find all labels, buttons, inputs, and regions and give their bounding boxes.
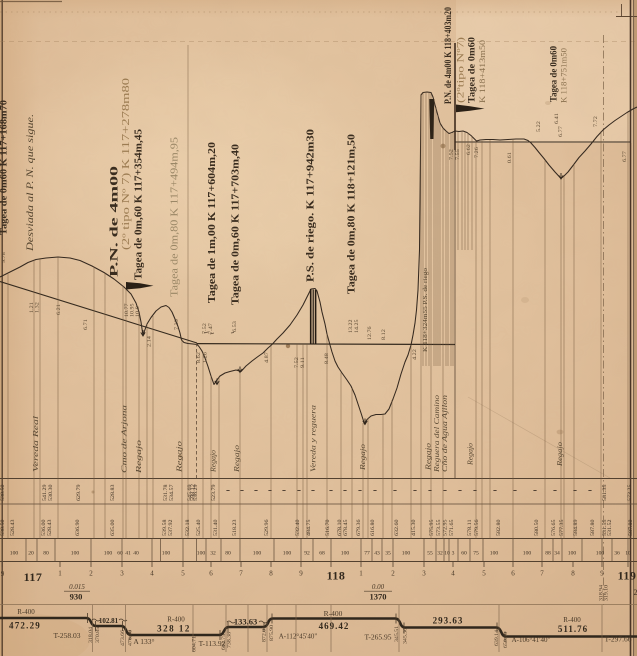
svg-text:582.80: 582.80 xyxy=(496,519,502,536)
svg-text:119: 119 xyxy=(618,569,637,583)
svg-text:60: 60 xyxy=(461,551,467,557)
svg-text:77: 77 xyxy=(364,551,370,557)
svg-text:R-400: R-400 xyxy=(17,608,35,616)
svg-text:523.79: 523.79 xyxy=(211,484,217,501)
svg-text:100: 100 xyxy=(341,551,350,557)
svg-text:41: 41 xyxy=(125,551,131,557)
svg-text:529.96: 529.96 xyxy=(264,519,270,536)
svg-text:530.30: 530.30 xyxy=(48,484,54,501)
svg-text:345.51: 345.51 xyxy=(394,626,400,642)
svg-text:Tagea de 0m60 K 117+168m70: Tagea de 0m60 K 117+168m70 xyxy=(0,100,10,235)
svg-text:100: 100 xyxy=(490,551,499,557)
svg-text:100: 100 xyxy=(104,551,113,557)
svg-text:1.32: 1.32 xyxy=(35,302,41,313)
svg-text:530.50: 530.50 xyxy=(0,484,6,501)
svg-text:80: 80 xyxy=(225,551,231,557)
svg-text:Tagea de 0m,60 K 117+703m,40: Tagea de 0m,60 K 117+703m,40 xyxy=(231,144,242,305)
svg-text:572.95: 572.95 xyxy=(443,519,449,536)
svg-text:R-400: R-400 xyxy=(324,609,343,618)
svg-text:P.S. de riego. K 117+942m30: P.S. de riego. K 117+942m30 xyxy=(306,129,317,282)
svg-text:P.N. de 4m00: P.N. de 4m00 xyxy=(109,166,121,277)
svg-text:20: 20 xyxy=(28,551,34,557)
svg-text:636.90: 636.90 xyxy=(75,519,81,536)
svg-text:Vereda y reguera: Vereda y reguera xyxy=(310,404,318,472)
svg-text:117: 117 xyxy=(24,570,43,584)
svg-text:55: 55 xyxy=(427,551,433,557)
svg-text:K 118+751m50: K 118+751m50 xyxy=(560,48,569,103)
svg-text:Tagea de 0m60: Tagea de 0m60 xyxy=(549,46,559,102)
svg-text:Tagea de 0m,80 K 117+494m,95: Tagea de 0m,80 K 117+494m,95 xyxy=(170,137,181,297)
svg-text:6: 6 xyxy=(209,570,213,578)
svg-text:4: 4 xyxy=(451,570,455,578)
svg-text:32: 32 xyxy=(437,551,443,557)
svg-text:531.40: 531.40 xyxy=(213,519,219,536)
svg-text:3: 3 xyxy=(452,551,455,557)
svg-text:532.18: 532.18 xyxy=(185,519,191,536)
svg-text:P.N. de 4m00 K 118+403m20: P.N. de 4m00 K 118+403m20 xyxy=(443,7,453,104)
svg-text:100: 100 xyxy=(596,551,605,557)
svg-text:133.63: 133.63 xyxy=(234,617,257,627)
svg-text:88: 88 xyxy=(545,551,551,557)
svg-text:598.12: 598.12 xyxy=(191,484,197,501)
svg-text:9.78: 9.78 xyxy=(1,252,7,263)
svg-text:7.52: 7.52 xyxy=(449,149,455,160)
svg-text:R-400: R-400 xyxy=(563,616,581,624)
svg-text:635.00: 635.00 xyxy=(110,519,116,536)
svg-text:9: 9 xyxy=(600,570,604,578)
svg-text:370.85: 370.85 xyxy=(95,627,101,643)
svg-text:100: 100 xyxy=(402,551,411,557)
svg-text:616.80: 616.80 xyxy=(370,519,376,536)
svg-text:2.14: 2.14 xyxy=(147,336,153,347)
svg-text:T-297.66: T-297.66 xyxy=(604,635,631,644)
svg-text:Tagea de 0m60: Tagea de 0m60 xyxy=(468,37,478,103)
svg-text:1370: 1370 xyxy=(370,592,387,602)
svg-text:679.36: 679.36 xyxy=(356,519,362,536)
svg-text:875.90: 875.90 xyxy=(269,625,275,641)
svg-text:10: 10 xyxy=(625,551,631,557)
svg-text:92: 92 xyxy=(304,551,310,557)
svg-text:484.75: 484.75 xyxy=(306,519,312,536)
svg-text:Tagea de 1m,00 K 117+604m,20: Tagea de 1m,00 K 117+604m,20 xyxy=(207,142,218,303)
svg-text:7.26: 7.26 xyxy=(474,147,480,158)
svg-text:2: 2 xyxy=(391,570,395,578)
svg-text:(2º tipo Nº 7) K 117+278m80: (2º tipo Nº 7) K 117+278m80 xyxy=(121,78,132,250)
svg-text:14.25: 14.25 xyxy=(354,319,360,333)
svg-text:Regajo: Regajo xyxy=(425,442,433,471)
svg-text:469.42: 469.42 xyxy=(319,621,350,631)
svg-text:100: 100 xyxy=(162,551,171,557)
svg-text:75: 75 xyxy=(473,551,479,557)
svg-text:573.55: 573.55 xyxy=(436,519,442,536)
svg-text:7.39: 7.39 xyxy=(174,319,180,330)
svg-text:100: 100 xyxy=(197,551,206,557)
svg-text:100: 100 xyxy=(523,551,532,557)
svg-text:10: 10 xyxy=(444,551,450,557)
svg-text:Regajo: Regajo xyxy=(135,439,143,474)
svg-text:8: 8 xyxy=(571,570,575,578)
svg-text:10.9: 10.9 xyxy=(135,306,141,317)
svg-text:7.72: 7.72 xyxy=(593,116,599,127)
svg-text:Tagea de 0m,60 K 117+354m,45: Tagea de 0m,60 K 117+354m,45 xyxy=(134,129,145,280)
svg-text:(2ºtipo Nº7): (2ºtipo Nº7) xyxy=(456,37,467,103)
svg-text:100: 100 xyxy=(253,551,262,557)
svg-text:4.87: 4.87 xyxy=(264,352,270,363)
svg-text:Regajo: Regajo xyxy=(210,449,218,473)
svg-text:Regajo: Regajo xyxy=(176,440,184,473)
svg-text:Regajo: Regajo xyxy=(233,444,241,473)
svg-text:1: 1 xyxy=(359,570,363,578)
svg-text:584.89: 584.89 xyxy=(573,519,579,536)
svg-text:9: 9 xyxy=(1,570,5,578)
svg-text:577.35: 577.35 xyxy=(559,519,565,536)
svg-text:8.62: 8.62 xyxy=(196,352,202,363)
svg-text:587.80: 587.80 xyxy=(590,519,596,536)
svg-text:318.04: 318.04 xyxy=(88,627,94,643)
svg-text:Regajo: Regajo xyxy=(467,442,475,466)
svg-text:A-112°45'40": A-112°45'40" xyxy=(279,633,318,641)
svg-text:7.47: 7.47 xyxy=(208,323,214,334)
svg-text:639.14: 639.14 xyxy=(494,630,500,646)
svg-text:34: 34 xyxy=(554,551,560,557)
svg-text:604.71: 604.71 xyxy=(192,636,198,652)
svg-text:118: 118 xyxy=(327,569,346,583)
svg-text:328 12: 328 12 xyxy=(157,624,191,634)
svg-text:Desviada al P. N. que sigue.: Desviada al P. N. que sigue. xyxy=(25,114,36,252)
svg-text:12.76: 12.76 xyxy=(367,326,373,340)
svg-text:8.48: 8.48 xyxy=(324,353,330,364)
svg-text:5.22: 5.22 xyxy=(536,121,542,132)
svg-text:4: 4 xyxy=(150,570,154,578)
svg-text:293.63: 293.63 xyxy=(433,616,464,626)
svg-text:100: 100 xyxy=(10,551,19,557)
svg-text:102.81: 102.81 xyxy=(99,617,119,625)
svg-text:6.71: 6.71 xyxy=(83,319,89,330)
svg-text:K 118+413m50: K 118+413m50 xyxy=(477,40,487,103)
svg-text:7: 7 xyxy=(239,570,243,578)
svg-text:580.50: 580.50 xyxy=(534,519,540,536)
svg-text:1.26: 1.26 xyxy=(203,352,209,363)
svg-text:678.45: 678.45 xyxy=(343,519,349,536)
svg-text:581.35: 581.35 xyxy=(602,484,608,501)
svg-text:650.90: 650.90 xyxy=(503,632,509,648)
svg-text:528.43: 528.43 xyxy=(10,519,16,536)
svg-text:8: 8 xyxy=(269,570,273,578)
svg-text:Vereda Real: Vereda Real xyxy=(32,416,40,472)
svg-text:473.66: 473.66 xyxy=(120,630,126,646)
svg-text:0.015: 0.015 xyxy=(69,583,85,591)
svg-text:472.29: 472.29 xyxy=(9,621,41,631)
svg-text:5: 5 xyxy=(181,570,185,578)
svg-text:537.92: 537.92 xyxy=(168,519,174,536)
svg-text:3: 3 xyxy=(120,570,124,578)
svg-text:100: 100 xyxy=(71,551,80,557)
svg-text:345.50: 345.50 xyxy=(403,628,409,644)
svg-text:9.11: 9.11 xyxy=(300,357,306,368)
svg-text:6.21: 6.21 xyxy=(56,304,62,315)
svg-text:532.40: 532.40 xyxy=(295,519,301,536)
svg-text:Reguera del Camino: Reguera del Camino xyxy=(433,394,441,473)
svg-text:8.12: 8.12 xyxy=(381,329,387,340)
svg-text:A-106°41'40": A-106°41'40" xyxy=(512,636,551,644)
svg-text:573.25: 573.25 xyxy=(627,484,633,501)
svg-text:476.50: 476.50 xyxy=(128,630,134,646)
svg-text:40: 40 xyxy=(133,551,139,557)
svg-text:7.55: 7.55 xyxy=(455,149,461,160)
svg-text:530.50: 530.50 xyxy=(0,519,6,536)
svg-text:579.56: 579.56 xyxy=(474,519,480,536)
svg-text:2: 2 xyxy=(89,570,93,578)
svg-text:319.10: 319.10 xyxy=(604,585,610,601)
svg-text:525.40: 525.40 xyxy=(196,519,202,536)
svg-text:576.65: 576.65 xyxy=(551,519,557,536)
svg-text:68: 68 xyxy=(319,551,325,557)
svg-text:534.57: 534.57 xyxy=(169,484,175,501)
svg-text:930: 930 xyxy=(70,592,83,602)
svg-text:35: 35 xyxy=(385,551,391,557)
svg-text:Regajo: Regajo xyxy=(556,441,564,467)
svg-text:575.95: 575.95 xyxy=(429,519,435,536)
svg-text:6.41: 6.41 xyxy=(554,113,560,124)
svg-text:Regajo: Regajo xyxy=(359,443,367,471)
svg-text:K 118+324m55 P.S. de riego: K 118+324m55 P.S. de riego xyxy=(422,267,429,352)
svg-text:872.01: 872.01 xyxy=(262,626,268,642)
svg-text:0.00: 0.00 xyxy=(372,583,385,591)
svg-text:43: 43 xyxy=(374,551,380,557)
svg-text:6.77: 6.77 xyxy=(622,151,628,162)
svg-text:4.22: 4.22 xyxy=(412,349,418,360)
svg-text:511.76: 511.76 xyxy=(558,624,588,634)
svg-text:9: 9 xyxy=(299,570,303,578)
svg-text:632.60: 632.60 xyxy=(394,519,400,536)
svg-text:578.11: 578.11 xyxy=(467,519,473,536)
svg-text:32: 32 xyxy=(210,551,216,557)
svg-text:629.79: 629.79 xyxy=(76,484,82,501)
svg-text:6.53: 6.53 xyxy=(232,321,238,332)
svg-text:T-258.03: T-258.03 xyxy=(53,631,80,640)
svg-text:1: 1 xyxy=(58,570,62,578)
svg-text:528.83: 528.83 xyxy=(110,484,116,501)
svg-text:A 133°: A 133° xyxy=(133,637,154,646)
svg-text:518.23: 518.23 xyxy=(232,519,238,536)
svg-text:516.70: 516.70 xyxy=(325,519,331,536)
svg-text:3: 3 xyxy=(422,570,426,578)
svg-text:6: 6 xyxy=(511,570,515,578)
svg-text:Tagea de 0m,80 K 118+121m,50: Tagea de 0m,80 K 118+121m,50 xyxy=(347,134,358,294)
svg-text:528.43: 528.43 xyxy=(47,519,53,536)
svg-text:738.38: 738.38 xyxy=(227,632,233,648)
svg-text:531.52: 531.52 xyxy=(607,519,613,536)
svg-text:415.30: 415.30 xyxy=(411,519,417,536)
svg-text:587.80: 587.80 xyxy=(628,519,634,536)
svg-text:100: 100 xyxy=(568,551,577,557)
svg-text:571.65: 571.65 xyxy=(449,519,455,536)
svg-text:80: 80 xyxy=(43,551,49,557)
svg-text:T-265.95: T-265.95 xyxy=(364,633,391,642)
svg-text:60: 60 xyxy=(117,551,123,557)
svg-text:Cño de Agua Ajilon: Cño de Agua Ajilon xyxy=(441,394,449,472)
svg-text:6.77: 6.77 xyxy=(558,126,564,137)
svg-text:0.61: 0.61 xyxy=(507,152,513,163)
svg-text:5: 5 xyxy=(482,570,486,578)
svg-text:Cmo de Arjona: Cmo de Arjona xyxy=(121,404,129,473)
svg-text:36: 36 xyxy=(614,551,620,557)
svg-text:6.62: 6.62 xyxy=(466,144,472,155)
svg-text:2: 2 xyxy=(634,588,637,597)
svg-text:100: 100 xyxy=(283,551,292,557)
svg-text:R-400: R-400 xyxy=(167,616,185,624)
svg-text:7: 7 xyxy=(540,570,544,578)
